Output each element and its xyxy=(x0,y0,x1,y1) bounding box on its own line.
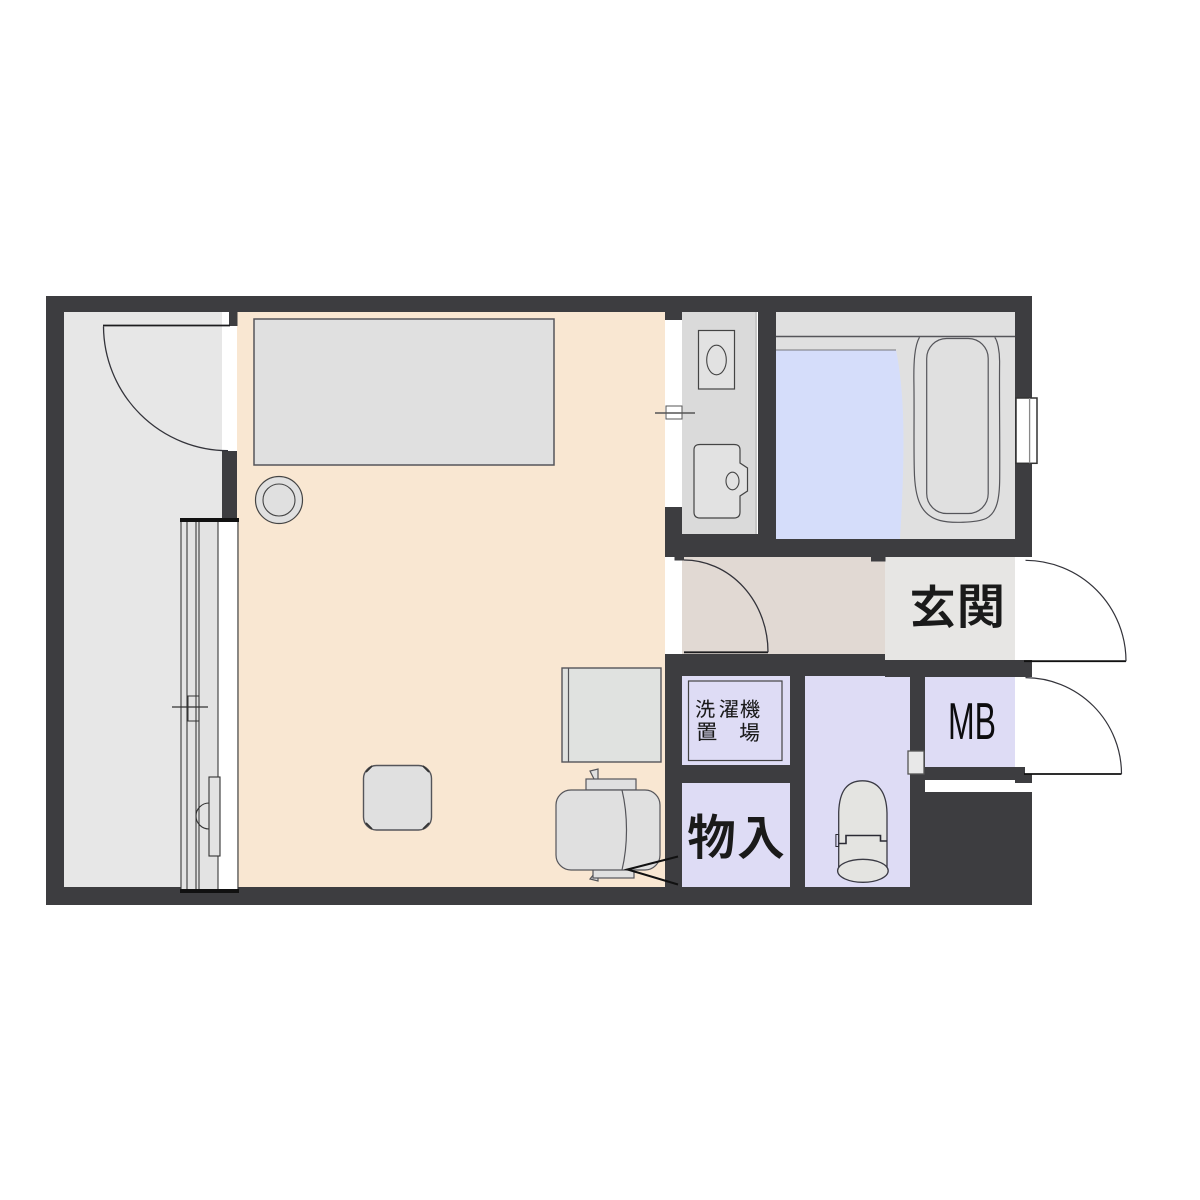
svg-text:MB: MB xyxy=(948,692,996,750)
